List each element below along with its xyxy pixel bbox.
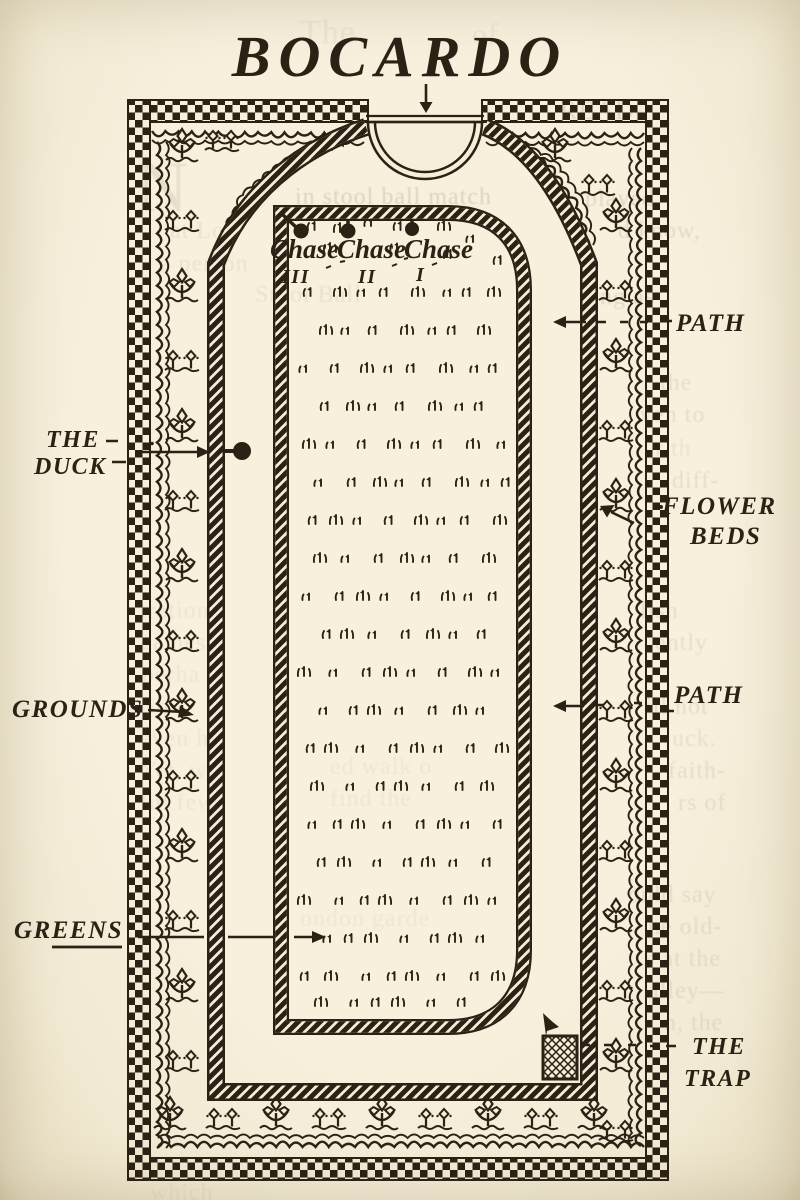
flower-icon xyxy=(600,619,632,651)
grass-tuft-icon xyxy=(483,553,495,562)
grass-tuft-icon xyxy=(331,364,338,373)
flower-icon xyxy=(166,409,198,441)
trap-flag-icon xyxy=(543,1013,559,1036)
grass-tuft-icon xyxy=(338,857,350,866)
grass-tuft-icon xyxy=(449,631,456,638)
grass-tuft-icon xyxy=(422,783,429,790)
grass-tuft-icon xyxy=(369,326,376,335)
flower-icon xyxy=(599,841,633,861)
grass-tuft-icon xyxy=(428,327,435,334)
grass-tuft-icon xyxy=(467,439,479,448)
grass-tuft-icon xyxy=(384,365,391,372)
grass-tuft-icon xyxy=(461,516,468,525)
grass-tuft-icon xyxy=(431,934,438,943)
flower-icon xyxy=(599,561,633,581)
grass-tuft-icon xyxy=(427,999,434,1006)
grass-tuft-icon xyxy=(368,705,380,714)
grass-tuft-icon xyxy=(334,820,341,829)
grass-tuft-icon xyxy=(443,289,450,296)
grass-tuft-icon xyxy=(350,999,357,1006)
grass-tuft-icon xyxy=(491,669,498,676)
grass-tuft-icon xyxy=(388,439,400,448)
chase-number-1: I xyxy=(415,264,425,286)
grass-tuft-icon xyxy=(308,222,315,231)
grass-tuft-icon xyxy=(350,706,357,715)
flower-icon xyxy=(599,281,633,301)
hedge-line xyxy=(636,148,641,1146)
flower-icon xyxy=(166,549,198,581)
grass-tuft-icon xyxy=(390,744,397,753)
grass-tuft-icon xyxy=(401,553,413,562)
flower-icon xyxy=(366,1097,398,1129)
label-path-top: PATH xyxy=(675,310,745,337)
grass-tuft-icon xyxy=(496,743,508,752)
grass-tuft-icon xyxy=(417,820,424,829)
flower-icon xyxy=(599,701,633,721)
flower-icon xyxy=(165,631,199,651)
hedge-line xyxy=(628,148,632,1146)
grass-tuft-icon xyxy=(476,935,483,942)
grass-tuft-icon xyxy=(449,933,461,942)
grass-tuft-icon xyxy=(469,667,481,676)
grass-tuft-icon xyxy=(372,998,379,1007)
grass-tuft-icon xyxy=(361,363,373,372)
grass-tuft-icon xyxy=(502,478,509,487)
grass-tuft-icon xyxy=(347,401,359,410)
grass-tuft-icon xyxy=(346,783,353,790)
flower-icon xyxy=(600,899,632,931)
grass-tuft-icon xyxy=(385,516,392,525)
grass-tuft-icon xyxy=(325,971,337,980)
grass-tuft-icon xyxy=(412,592,419,601)
grass-tuft-icon xyxy=(375,554,382,563)
page-title: BOCARDO xyxy=(231,24,568,89)
grass-tuft-icon xyxy=(478,325,490,334)
flower-icon xyxy=(600,199,632,231)
grass-tuft-icon xyxy=(330,515,342,524)
grass-tuft-icon xyxy=(314,553,326,562)
grass-tuft-icon xyxy=(494,820,501,829)
label-greens: GREENS xyxy=(14,917,123,944)
grass-tuft-icon xyxy=(326,441,333,448)
flower-icon xyxy=(599,981,633,1001)
grass-tuft-icon xyxy=(488,287,500,296)
grass-tuft-icon xyxy=(345,934,352,943)
grass-tuft-icon xyxy=(465,895,477,904)
grass-tuft-icon xyxy=(456,477,468,486)
chase-number-2: II xyxy=(357,266,377,288)
flower-icon xyxy=(166,829,198,861)
grass-tuft-icon xyxy=(368,631,375,638)
grass-tuft-icon xyxy=(357,289,364,296)
grass-tuft-icon xyxy=(442,591,454,600)
grass-tuft-icon xyxy=(476,707,483,714)
chase-label-2: Chase xyxy=(337,234,406,264)
hedge-border xyxy=(152,131,644,1148)
grass-tuft-icon xyxy=(458,998,465,1007)
flower-icon xyxy=(418,1109,452,1129)
flower-icon xyxy=(165,1051,199,1071)
chase-number-3: III xyxy=(281,266,310,288)
grass-tuft-icon xyxy=(470,365,477,372)
bocardo-garden-plan: BOCARDO Chase Chase Chase III II I THE D… xyxy=(0,0,800,1200)
grass-tuft-icon xyxy=(395,781,407,790)
grass-tuft-icon xyxy=(325,743,337,752)
grass-tuft-icon xyxy=(318,858,325,867)
grass-tuft-icon xyxy=(444,896,451,905)
grass-tuft-icon xyxy=(438,221,450,230)
grass-tuft-icon xyxy=(456,782,463,791)
flower-icon xyxy=(165,771,199,791)
grass-tuft-icon xyxy=(492,971,504,980)
grass-tuft-icon xyxy=(448,326,455,335)
grass-tuft-icon xyxy=(438,819,450,828)
grass-tuft-icon xyxy=(341,555,348,562)
grass-tuft-icon xyxy=(309,516,316,525)
grass-tuft-icon xyxy=(335,897,342,904)
label-path-mid: PATH xyxy=(673,682,743,709)
label-flower-beds-2: BEDS xyxy=(689,523,761,550)
court-wall xyxy=(281,213,524,1027)
duck-marker xyxy=(224,443,251,460)
grass-tuft-icon xyxy=(302,593,309,600)
grass-tuft-icon xyxy=(404,858,411,867)
flower-icon xyxy=(166,269,198,301)
grass-tuft-icon xyxy=(427,629,439,638)
grass-tuft-icon xyxy=(341,629,353,638)
grass-tuft-icon xyxy=(348,478,355,487)
grass-tuft-icon xyxy=(411,743,423,752)
grass-tuft-icon xyxy=(481,479,488,486)
grass-tuft-icon xyxy=(481,781,493,790)
grass-tuft-icon xyxy=(467,744,474,753)
grass-tuft-icon xyxy=(396,402,403,411)
grass-tuft-icon xyxy=(464,593,471,600)
label-the-duck-2: DUCK xyxy=(33,454,107,480)
grass-tuft-icon xyxy=(461,821,468,828)
hedge-line xyxy=(157,142,162,1148)
grass-tuft-icon xyxy=(377,782,384,791)
grass-tuft-icon xyxy=(401,325,413,334)
flower-icon xyxy=(260,1097,292,1129)
grass-tuft-icon xyxy=(434,745,441,752)
grass-tuft-icon xyxy=(489,364,496,373)
greens-grass-field xyxy=(298,219,509,1006)
grass-tuft-icon xyxy=(475,402,482,411)
grass-tuft-icon xyxy=(415,515,427,524)
grass-tuft-icon xyxy=(298,895,310,904)
grass-tuft-icon xyxy=(434,440,441,449)
grounds-arrow-icon xyxy=(148,706,194,718)
flower-icon xyxy=(312,1109,346,1129)
chase-label-1: Chase xyxy=(270,234,339,264)
grass-tuft-icon xyxy=(307,744,314,753)
grass-tuft-icon xyxy=(423,478,430,487)
grass-tuft-icon xyxy=(384,667,396,676)
grass-tuft-icon xyxy=(407,669,414,676)
grass-tuft-icon xyxy=(488,897,495,904)
grass-tuft-icon xyxy=(411,441,418,448)
label-grounds: GROUNDS xyxy=(12,696,143,723)
grass-tuft-icon xyxy=(394,222,401,231)
label-the-trap-1: THE xyxy=(692,1034,746,1060)
grass-tuft-icon xyxy=(471,972,478,981)
grass-tuft-icon xyxy=(437,973,444,980)
inner-wall-outer-ring xyxy=(216,127,589,1092)
grass-tuft-icon xyxy=(392,997,404,1006)
grass-tuft-icon xyxy=(308,821,315,828)
grass-tuft-icon xyxy=(483,858,490,867)
grass-tuft-icon xyxy=(362,973,369,980)
grass-tuft-icon xyxy=(365,933,377,942)
grass-tuft-icon xyxy=(356,745,363,752)
hedge-line xyxy=(158,1134,644,1138)
grass-tuft-icon xyxy=(497,441,504,448)
grass-tuft-icon xyxy=(494,256,501,265)
grass-tuft-icon xyxy=(357,591,369,600)
flower-icon xyxy=(600,339,632,371)
grass-tuft-icon xyxy=(301,972,308,981)
label-the-trap-2: TRAP xyxy=(684,1066,751,1092)
flower-icon xyxy=(166,969,198,1001)
grass-tuft-icon xyxy=(429,401,441,410)
grass-tuft-icon xyxy=(400,935,407,942)
grass-tuft-icon xyxy=(336,592,343,601)
chase-label-3: Chase xyxy=(404,234,473,264)
grass-tuft-icon xyxy=(379,895,391,904)
flower-icon xyxy=(600,759,632,791)
grass-tuft-icon xyxy=(494,515,506,524)
flower-icon xyxy=(524,1109,558,1129)
grass-tuft-icon xyxy=(380,593,387,600)
grass-tuft-icon xyxy=(329,669,336,676)
grass-tuft-icon xyxy=(368,403,375,410)
grass-tuft-icon xyxy=(440,363,452,372)
grass-tuft-icon xyxy=(422,857,434,866)
label-flower-beds-1: FLOWER xyxy=(661,493,777,520)
flower-icon xyxy=(581,175,615,195)
grass-tuft-icon xyxy=(412,287,424,296)
hedge-line xyxy=(158,1142,644,1147)
grass-tuft-icon xyxy=(454,705,466,714)
grass-tuft-icon xyxy=(402,630,409,639)
grass-tuft-icon xyxy=(455,403,462,410)
grass-tuft-icon xyxy=(437,517,444,524)
grass-tuft-icon xyxy=(304,288,311,297)
grass-tuft-icon xyxy=(449,859,456,866)
grass-tuft-icon xyxy=(489,592,496,601)
grass-tuft-icon xyxy=(429,706,436,715)
grass-tuft-icon xyxy=(422,555,429,562)
grass-tuft-icon xyxy=(320,325,332,334)
grass-tuft-icon xyxy=(463,288,470,297)
trap-box xyxy=(543,1013,577,1079)
grass-tuft-icon xyxy=(321,402,328,411)
grass-tuft-icon xyxy=(450,554,457,563)
grass-tuft-icon xyxy=(380,288,387,297)
entrance-apse xyxy=(366,116,484,179)
grass-tuft-icon xyxy=(303,439,315,448)
label-the-duck-1: THE xyxy=(46,427,100,453)
grass-tuft-icon xyxy=(319,707,326,714)
grass-tuft-icon xyxy=(373,859,380,866)
grass-tuft-icon xyxy=(439,668,446,677)
grass-tuft-icon xyxy=(363,668,370,677)
book-page: TheofREAD-Nin stool ball matchplayedat L… xyxy=(0,0,800,1200)
flower-icon xyxy=(206,1109,240,1129)
grass-tuft-icon xyxy=(395,479,402,486)
grass-tuft-icon xyxy=(407,364,414,373)
grass-tuft-icon xyxy=(341,327,348,334)
flower-icon xyxy=(472,1097,504,1129)
grass-tuft-icon xyxy=(374,477,386,486)
grass-tuft-icon xyxy=(299,365,306,372)
grass-tuft-icon xyxy=(478,630,485,639)
grass-tuft-icon xyxy=(311,781,323,790)
grass-tuft-icon xyxy=(315,997,327,1006)
grass-tuft-icon xyxy=(352,819,364,828)
grass-tuft-icon xyxy=(298,667,310,676)
grass-tuft-icon xyxy=(323,935,330,942)
flower-beds xyxy=(154,129,633,1141)
grass-tuft-icon xyxy=(383,821,390,828)
grass-tuft-icon xyxy=(334,287,346,296)
grass-tuft-icon xyxy=(388,972,395,981)
grass-tuft-icon xyxy=(323,630,330,639)
grass-tuft-icon xyxy=(410,897,417,904)
grass-tuft-icon xyxy=(314,479,321,486)
flower-icon xyxy=(165,351,199,371)
grass-tuft-icon xyxy=(406,971,418,980)
grass-tuft-icon xyxy=(361,896,368,905)
grass-tuft-icon xyxy=(395,707,402,714)
grass-tuft-icon xyxy=(358,440,365,449)
flower-icon xyxy=(165,211,199,231)
grass-tuft-icon xyxy=(353,517,360,524)
